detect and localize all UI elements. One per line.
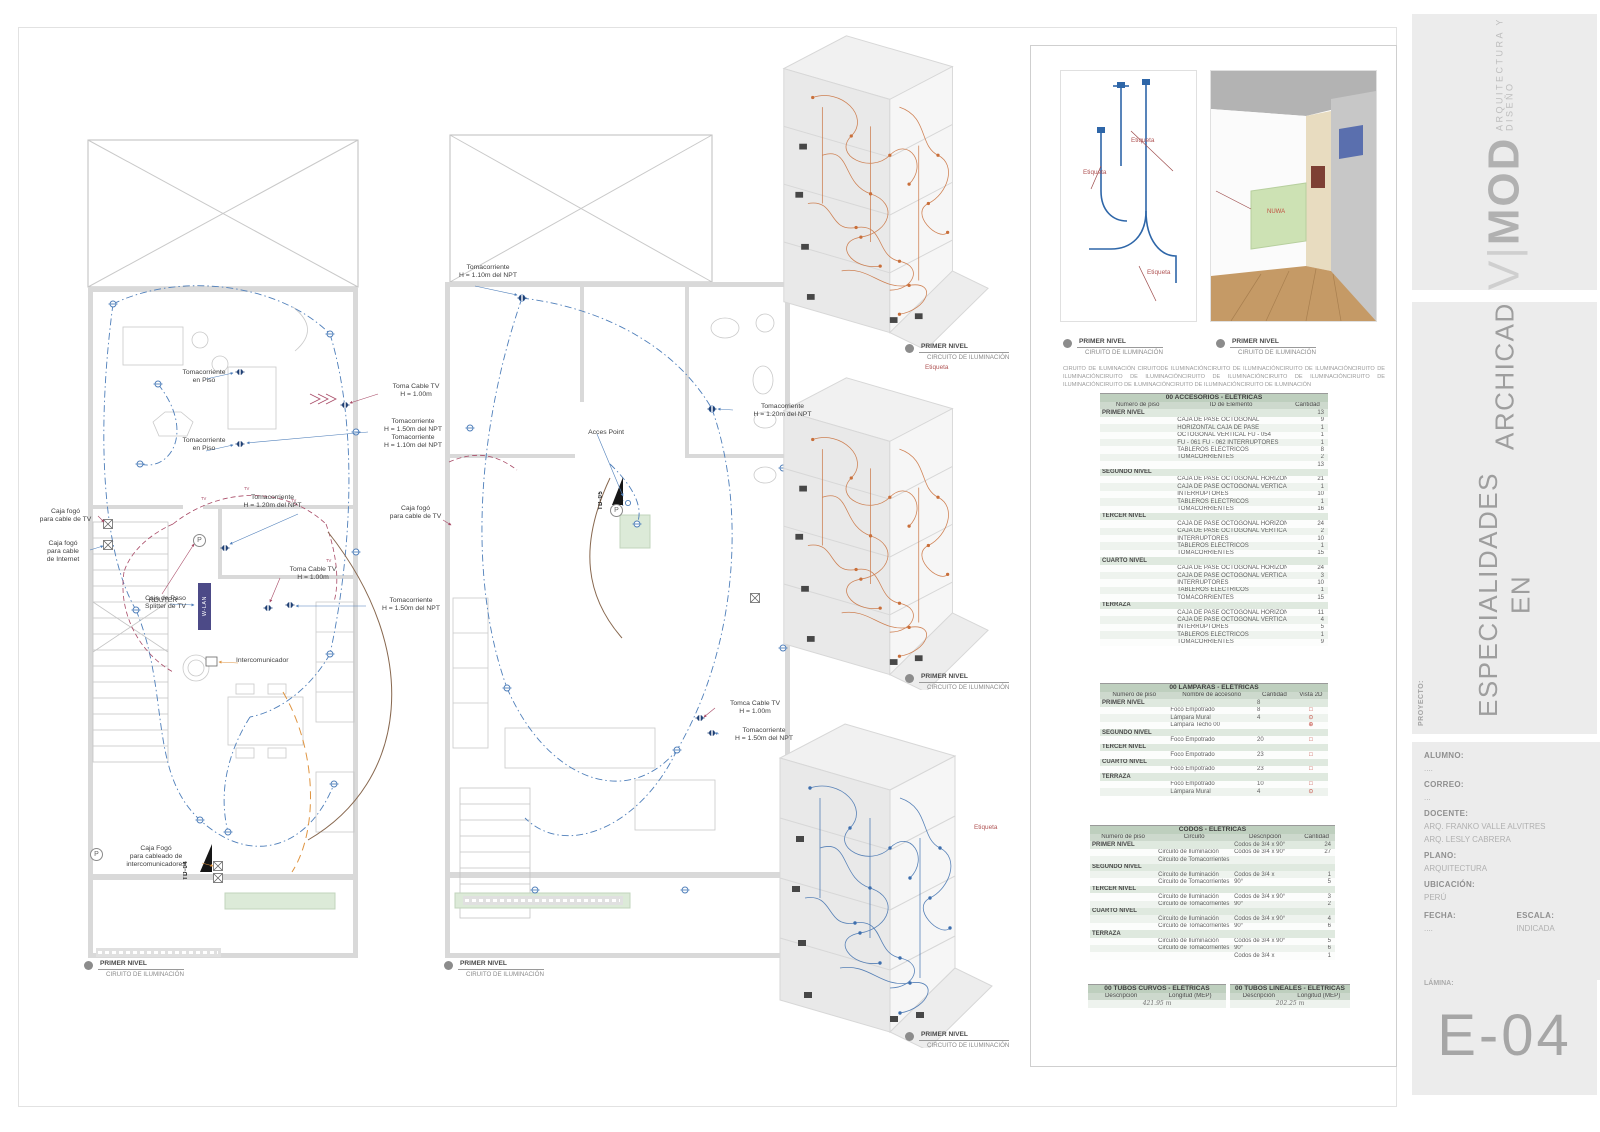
table-lamparas: 00 LÁMPARAS - ELÉTRICASNúmero de pisoNom… bbox=[1100, 683, 1328, 796]
table-cell: Foco Empotrado bbox=[1168, 766, 1255, 773]
table-cell: 15 bbox=[1287, 594, 1328, 601]
table-row: Circuito de IluminaciónCodos de 3/4 x 90… bbox=[1090, 915, 1335, 922]
table-cell bbox=[1100, 550, 1175, 557]
table-cell: 10 bbox=[1287, 579, 1328, 586]
table-row: CUARTO NIVEL bbox=[1090, 908, 1335, 915]
table-cell: 24 bbox=[1287, 565, 1328, 572]
table-cell bbox=[1156, 886, 1232, 893]
data-table: CODOS - ELÉTRICASNúmero de pisoCircuitoD… bbox=[1090, 825, 1335, 960]
table-tubos-curvos: 00 TUBOS CURVOS - ELÉTRICASDescripciónLo… bbox=[1088, 984, 1226, 1008]
table-cell bbox=[1287, 513, 1328, 520]
table-cell: CAJA DE PASE OCTOGONAL VERTICAL bbox=[1175, 616, 1287, 623]
table-cell: 11 bbox=[1287, 609, 1328, 616]
table-cell bbox=[1294, 759, 1328, 766]
fecha-value: .... bbox=[1424, 924, 1517, 933]
p-marker: P bbox=[610, 504, 623, 517]
td04-label: TD-04 bbox=[183, 848, 189, 880]
mural-lamp-icon: ⊙ bbox=[1308, 789, 1313, 795]
foco-lamp-icon: □ bbox=[1309, 752, 1313, 758]
table-cell: 1 bbox=[1287, 439, 1328, 446]
table-cell bbox=[1175, 469, 1287, 476]
drawing-sheet: { "titleblock": { "brand_v": "V|", "bran… bbox=[0, 0, 1600, 1132]
table-cell: 21 bbox=[1287, 476, 1328, 483]
table-cell: Circuito de Tomacorrientes bbox=[1156, 878, 1232, 885]
annotation: Tomacorriente en Piso bbox=[168, 369, 240, 385]
etiqueta-label: Etiqueta bbox=[1147, 269, 1170, 277]
table-cell bbox=[1294, 744, 1328, 751]
table-row: CAJA DE PASE OCTOGONAL VERTICAL4 bbox=[1100, 616, 1328, 623]
docente-value-1: ARQ. FRANKO VALLE ALVITRES bbox=[1424, 822, 1600, 831]
wlan-box: W-LAN bbox=[198, 583, 211, 630]
table-cell: ⊕ bbox=[1294, 722, 1328, 729]
foco-lamp-icon: □ bbox=[1309, 707, 1313, 713]
table-cell bbox=[1100, 714, 1168, 721]
table-cell bbox=[1175, 409, 1287, 416]
table-cell: 13 bbox=[1287, 409, 1328, 416]
table-cell bbox=[1100, 491, 1175, 498]
table-tubos-lineales: 00 TUBOS LINEALES - ELÉTRICASDescripción… bbox=[1230, 984, 1350, 1008]
table-row: Foco Empotrado23□ bbox=[1100, 766, 1328, 773]
table-cell: 1 bbox=[1287, 587, 1328, 594]
table-cell bbox=[1100, 609, 1175, 616]
table-cell: INTERRUPTORES bbox=[1175, 624, 1287, 631]
annotation: Tomacorriente H = 1.20m del NPT bbox=[735, 403, 830, 419]
table-cell: Circuito de Tomacorrientes bbox=[1156, 856, 1232, 863]
td05-label: TD-05 bbox=[598, 478, 604, 510]
table-cell bbox=[1100, 483, 1175, 490]
table-cell bbox=[1175, 461, 1287, 468]
column-header: Circuito bbox=[1156, 834, 1232, 842]
table-row: PRIMER NIVEL8 bbox=[1100, 699, 1328, 706]
table-cell: CAJA DE PASE OCTOGONAL HORIZONTAL bbox=[1175, 520, 1287, 527]
table-cell bbox=[1100, 722, 1168, 729]
table-row: TABLEROS ELÉCTRICOS1 bbox=[1100, 587, 1328, 594]
table-row: TERRAZA bbox=[1090, 930, 1335, 937]
table-row: TABLEROS ELÉCTRICOS1 bbox=[1100, 542, 1328, 549]
table-cell bbox=[1255, 722, 1294, 729]
annotation: Tomacorriente en Piso bbox=[168, 437, 240, 453]
column-header: Cantidad bbox=[1298, 834, 1335, 842]
table-cell: 5 bbox=[1298, 938, 1335, 945]
table-cell bbox=[1100, 506, 1175, 513]
detail-legend-2: PRIMER NIVEL CIRUITO DE ILUMINACIÓN bbox=[1216, 338, 1316, 356]
table-row: Circuito de IluminaciónCodos de 3/4 x 90… bbox=[1090, 893, 1335, 900]
table-cell bbox=[1100, 542, 1175, 549]
table-cell bbox=[1175, 602, 1287, 609]
table-cell: 10 bbox=[1287, 535, 1328, 542]
blue-panel bbox=[1339, 125, 1363, 159]
table-row: CAJA DE PASE OCTOGONAL HORIZONTAL24 bbox=[1100, 520, 1328, 527]
table-cell bbox=[1100, 639, 1175, 646]
table-row: CAJA DE PASE OCTOGONAL HORIZONTAL24 bbox=[1100, 565, 1328, 572]
brand-tagline: ARQUITECTURA Y DISEÑO bbox=[1495, 14, 1515, 131]
table-cell: CAJA DE PASE OCTOGONAL VERTICAL bbox=[1175, 483, 1287, 490]
table-cell bbox=[1294, 699, 1328, 706]
table-cell: 90° bbox=[1232, 878, 1298, 885]
table-cell bbox=[1298, 930, 1335, 937]
table-cell: 3 bbox=[1287, 572, 1328, 579]
table-cell: 1 bbox=[1298, 952, 1335, 959]
table-row: Codos de 3/4 x1 bbox=[1090, 952, 1335, 959]
table-cell bbox=[1255, 759, 1294, 766]
table-row: TERCER NIVEL bbox=[1100, 744, 1328, 751]
table-cell bbox=[1156, 908, 1232, 915]
table-cell: 20 bbox=[1255, 736, 1294, 743]
table-cell bbox=[1232, 864, 1298, 871]
table-cell bbox=[1298, 856, 1335, 863]
mural-lamp-icon: ⊙ bbox=[1308, 715, 1313, 721]
level-dot-icon bbox=[84, 961, 93, 970]
table-cell: CUARTO NIVEL bbox=[1090, 908, 1156, 915]
sheet-number: E-04 bbox=[1412, 1002, 1597, 1069]
table-cell: 1 bbox=[1287, 542, 1328, 549]
table-cell: TERRAZA bbox=[1090, 930, 1156, 937]
table-cell bbox=[1100, 424, 1175, 431]
foco-lamp-icon: □ bbox=[1309, 737, 1313, 743]
annotation: Toma Cable TV H = 1.00m bbox=[277, 566, 349, 582]
plan-left-caption: PRIMER NIVEL CIRUITO DE ILUMINACIÓN bbox=[84, 960, 184, 978]
table-cell: Codos de 3/4 x bbox=[1232, 871, 1298, 878]
table-row: Lámpara Mural4⊙ bbox=[1100, 714, 1328, 721]
table-row: TOMACORRIENTES2 bbox=[1100, 454, 1328, 461]
table-cell: 90° bbox=[1232, 901, 1298, 908]
table-cell: 9 bbox=[1287, 639, 1328, 646]
table-cell: CUARTO NIVEL bbox=[1100, 557, 1175, 564]
table-cell: 4 bbox=[1298, 915, 1335, 922]
table-cell: Circuito de Iluminación bbox=[1156, 871, 1232, 878]
table-row: TOMACORRIENTES15 bbox=[1100, 550, 1328, 557]
table-row: TERRAZA bbox=[1100, 773, 1328, 780]
data-table: 00 TUBOS CURVOS - ELÉTRICASDescripciónLo… bbox=[1088, 984, 1226, 1008]
table-cell: PRIMER NIVEL bbox=[1090, 841, 1156, 848]
table-row: TABLEROS ELÉCTRICOS1 bbox=[1100, 498, 1328, 505]
table-cell: 8 bbox=[1255, 699, 1294, 706]
annotation: Tomacorriente H = 1.20m del NPT bbox=[225, 494, 320, 510]
table-cell: 10 bbox=[1255, 781, 1294, 788]
table-cell: □ bbox=[1294, 736, 1328, 743]
ubicacion-label: UBICACIÓN: bbox=[1424, 880, 1600, 889]
table-cell bbox=[1090, 915, 1156, 922]
table-cell: 1 bbox=[1287, 432, 1328, 439]
table-title: CODOS - ELÉTRICAS bbox=[1090, 826, 1335, 834]
table-title: 00 LÁMPARAS - ELÉTRICAS bbox=[1100, 684, 1328, 692]
table-cell bbox=[1156, 841, 1232, 848]
table-codos: CODOS - ELÉTRICASNúmero de pisoCircuitoD… bbox=[1090, 825, 1335, 960]
table-row: Lámpara Mural4⊙ bbox=[1100, 788, 1328, 795]
table-cell: Codos de 3/4 x 90° bbox=[1232, 849, 1298, 856]
level-dot-icon bbox=[905, 674, 914, 683]
techo-lamp-icon: ⊕ bbox=[1308, 722, 1313, 728]
table-cell: □ bbox=[1294, 751, 1328, 758]
foco-lamp-icon: □ bbox=[1309, 781, 1313, 787]
table-cell: TABLEROS ELÉCTRICOS bbox=[1175, 498, 1287, 505]
plano-label: PLANO: bbox=[1424, 851, 1600, 860]
table-cell bbox=[1090, 878, 1156, 885]
table-cell bbox=[1175, 513, 1287, 520]
detail-image-wire: Etiqueta Etiqueta Etiqueta bbox=[1060, 70, 1197, 322]
correo-label: CORREO: bbox=[1424, 780, 1600, 789]
table-cell: TABLEROS ELÉCTRICOS bbox=[1175, 587, 1287, 594]
table-cell bbox=[1100, 624, 1175, 631]
table-row: CAJA DE PASE OCTOGONAL HORIZONTAL11 bbox=[1100, 609, 1328, 616]
table-row: Lámpara Techo 00⊕ bbox=[1100, 722, 1328, 729]
table-row: CAJA DE PASE OCTOGONAL VERTICAL1 bbox=[1100, 483, 1328, 490]
sheet-title-line1: ESPECIALIDADES EN bbox=[1472, 456, 1537, 734]
table-cell bbox=[1294, 729, 1328, 736]
level-dot-icon bbox=[905, 344, 914, 353]
table-row: CUARTO NIVEL bbox=[1100, 759, 1328, 766]
table-row: TOMACORRIENTES9 bbox=[1100, 639, 1328, 646]
docente-label: DOCENTE: bbox=[1424, 809, 1600, 818]
fecha-label: FECHA: bbox=[1424, 911, 1517, 920]
table-row: HORIZONTAL CAJA DE PASE1 bbox=[1100, 424, 1328, 431]
table-cell bbox=[1100, 454, 1175, 461]
table-cell bbox=[1100, 565, 1175, 572]
table-row: SEGUNDO NIVEL bbox=[1100, 729, 1328, 736]
table-cell bbox=[1100, 781, 1168, 788]
table-cell: 8 bbox=[1255, 707, 1294, 714]
table-cell bbox=[1232, 908, 1298, 915]
table-row: PRIMER NIVELCodos de 3/4 x 90°24 bbox=[1090, 841, 1335, 848]
etiqueta-label: Etiqueta bbox=[925, 364, 948, 372]
annotation: Tomacorriente H = 1.50m del NPT bbox=[720, 727, 808, 743]
table-cell: TERCER NIVEL bbox=[1100, 744, 1168, 751]
table-row: Foco Empotrado20□ bbox=[1100, 736, 1328, 743]
table-cell bbox=[1168, 759, 1255, 766]
table-cell bbox=[1175, 557, 1287, 564]
column-header: Descripción bbox=[1088, 993, 1154, 1001]
column-header: Longitud (MEP) bbox=[1288, 993, 1350, 1001]
level-dot-icon bbox=[444, 961, 453, 970]
table-cell: 4 bbox=[1255, 714, 1294, 721]
painting bbox=[1311, 166, 1325, 188]
table-accesorios: 00 ACCESORIOS - ELÉTRICASNúmero de pisoI… bbox=[1100, 393, 1328, 646]
table-cell bbox=[1100, 498, 1175, 505]
table-cell: ⊙ bbox=[1294, 788, 1328, 795]
table-cell bbox=[1090, 901, 1156, 908]
table-cell bbox=[1232, 930, 1298, 937]
table-cell: 2 bbox=[1287, 528, 1328, 535]
column-header: ID de Elemento bbox=[1175, 402, 1287, 410]
table-cell bbox=[1090, 893, 1156, 900]
column-header: Descripción bbox=[1230, 993, 1288, 1001]
table-cell bbox=[1100, 461, 1175, 468]
annotation: Tomacorriente H = 1.10m del NPT bbox=[448, 264, 528, 280]
table-cell bbox=[1287, 557, 1328, 564]
table-cell: INTERRUPTORES bbox=[1175, 579, 1287, 586]
annotation: Intercomunicador bbox=[236, 657, 318, 665]
data-table: 00 ACCESORIOS - ELÉTRICASNúmero de pisoI… bbox=[1100, 393, 1328, 646]
table-cell bbox=[1298, 864, 1335, 871]
data-table: 00 TUBOS LINEALES - ELÉTRICASDescripción… bbox=[1230, 984, 1350, 1008]
titleblock-lamina-box: LÁMINA: E-04 bbox=[1412, 968, 1597, 1095]
table-cell: Codos de 3/4 x 90° bbox=[1232, 893, 1298, 900]
table-cell: Circuito de Iluminación bbox=[1156, 849, 1232, 856]
table-cell: 23 bbox=[1255, 766, 1294, 773]
table-cell bbox=[1100, 736, 1168, 743]
table-cell: INTERRUPTORES bbox=[1175, 535, 1287, 542]
table-cell: SEGUNDO NIVEL bbox=[1090, 864, 1156, 871]
table-cell: 4 bbox=[1255, 788, 1294, 795]
table-cell: CAJA DE PASE OCTOGONAL VERTICAL bbox=[1175, 572, 1287, 579]
detail-image-render: NUWA bbox=[1210, 70, 1377, 322]
table-row: Circuito de IluminaciónCodos de 3/4 x1 bbox=[1090, 871, 1335, 878]
table-cell: ⊙ bbox=[1294, 714, 1328, 721]
table-row: INTERRUPTORES10 bbox=[1100, 535, 1328, 542]
table-row: CAJA DE PASE OCTOGONAL VERTICAL3 bbox=[1100, 572, 1328, 579]
correo-value: ... bbox=[1424, 793, 1600, 802]
table-cell: TOMACORRIENTES bbox=[1175, 594, 1287, 601]
table-cell: Circuito de Tomacorrientes bbox=[1156, 923, 1232, 930]
table-cell: Foco Empotrado bbox=[1168, 781, 1255, 788]
table-cell bbox=[1100, 616, 1175, 623]
table-cell bbox=[1100, 631, 1175, 638]
sheet-title-line2: ARCHICAD bbox=[1488, 302, 1521, 450]
table-row: FU - 061 FU - 062 INTERRUPTORES1 bbox=[1100, 439, 1328, 446]
table-row: Foco Empotrado8□ bbox=[1100, 707, 1328, 714]
table-cell: Circuito de Iluminación bbox=[1156, 893, 1232, 900]
level-dot-icon bbox=[905, 1032, 914, 1041]
p-marker: P bbox=[193, 534, 206, 547]
table-row: CUARTO NIVEL bbox=[1100, 557, 1328, 564]
green-cabinet bbox=[1251, 183, 1306, 249]
table-cell: TABLEROS ELÉCTRICOS bbox=[1175, 446, 1287, 453]
table-cell: FU - 061 FU - 062 INTERRUPTORES bbox=[1175, 439, 1287, 446]
table-row: Circuito de Tomacorrientes90°2 bbox=[1090, 901, 1335, 908]
table-cell: TABLEROS ELÉCTRICOS bbox=[1175, 631, 1287, 638]
table-row: SEGUNDO NIVEL bbox=[1090, 864, 1335, 871]
table-row: 421.95 m bbox=[1088, 1000, 1226, 1007]
table-cell bbox=[1090, 856, 1156, 863]
table-cell: Lámpara Mural bbox=[1168, 714, 1255, 721]
table-cell: 24 bbox=[1298, 841, 1335, 848]
table-cell: 24 bbox=[1287, 520, 1328, 527]
proyecto-label: PROYECTO: bbox=[1418, 680, 1425, 726]
table-cell: TOMACORRIENTES bbox=[1175, 454, 1287, 461]
table-cell: TABLEROS ELÉCTRICOS bbox=[1175, 542, 1287, 549]
table-cell bbox=[1100, 579, 1175, 586]
table-cell bbox=[1090, 871, 1156, 878]
annotation: Tomacorriente H = 1.50m del NPT bbox=[366, 597, 456, 613]
column-header: Número de piso bbox=[1100, 692, 1168, 700]
table-row: CAJA DE PASE OCTOGONAL HORIZONTAL21 bbox=[1100, 476, 1328, 483]
table-title: 00 TUBOS LINEALES - ELÉTRICAS bbox=[1230, 985, 1350, 993]
table-cell bbox=[1100, 417, 1175, 424]
column-header: Longitud (MEP) bbox=[1154, 993, 1226, 1001]
view2-caption: PRIMER NIVEL CIRCUITO DE ILUMINACIÓN bbox=[905, 673, 1009, 691]
table-cell bbox=[1232, 886, 1298, 893]
table-cell bbox=[1090, 952, 1156, 959]
table-cell bbox=[1232, 856, 1298, 863]
table-cell bbox=[1100, 788, 1168, 795]
titleblock-logo-box: V|MOD ARQUITECTURA Y DISEÑO bbox=[1412, 14, 1597, 290]
table-row: INTERRUPTORES10 bbox=[1100, 491, 1328, 498]
p-marker: P bbox=[90, 848, 103, 861]
annotation: Toma Cable TV H = 1.00m bbox=[380, 383, 452, 399]
table-cell bbox=[1100, 476, 1175, 483]
table-cell bbox=[1100, 446, 1175, 453]
table-cell bbox=[1100, 594, 1175, 601]
table-row: TABLEROS ELÉCTRICOS8 bbox=[1100, 446, 1328, 453]
table-cell: 90° bbox=[1232, 923, 1298, 930]
render-text: NUWA bbox=[1267, 209, 1285, 215]
table-cell: Codos de 3/4 x 90° bbox=[1232, 938, 1298, 945]
column-header: Nombre de accesorio bbox=[1168, 692, 1255, 700]
table-cell: CAJA DE PASE OCTOGONAL HORIZONTAL bbox=[1175, 609, 1287, 616]
detail-legend-1: PRIMER NIVEL CIRUITO DE ILUMINACIÓN bbox=[1063, 338, 1163, 356]
table-cell bbox=[1100, 707, 1168, 714]
view1-caption: PRIMER NIVEL CIRCUITO DE ILUMINACIÓN bbox=[905, 343, 1009, 361]
table-cell bbox=[1156, 864, 1232, 871]
table-cell bbox=[1255, 744, 1294, 751]
plano-value: ARQUITECTURA bbox=[1424, 864, 1600, 873]
table-cell: TERRAZA bbox=[1100, 773, 1168, 780]
table-cell: PRIMER NIVEL bbox=[1100, 409, 1175, 416]
table-cell: 16 bbox=[1287, 506, 1328, 513]
table-cell: PRIMER NIVEL bbox=[1100, 699, 1168, 706]
table-cell: Codos de 3/4 x 90° bbox=[1232, 841, 1298, 848]
table-cell: 1 bbox=[1287, 483, 1328, 490]
table-cell: CAJA DE PASE OCTOGONAL bbox=[1175, 417, 1287, 424]
table-cell bbox=[1168, 744, 1255, 751]
table-cell bbox=[1298, 908, 1335, 915]
table-title: 00 TUBOS CURVOS - ELÉTRICAS bbox=[1088, 985, 1226, 993]
table-row: TERCER NIVEL bbox=[1100, 513, 1328, 520]
table-row: 202.25 m bbox=[1230, 1000, 1350, 1007]
table-cell: Foco Empotrado bbox=[1168, 707, 1255, 714]
table-cell: INTERRUPTORES bbox=[1175, 491, 1287, 498]
table-cell bbox=[1100, 766, 1168, 773]
table-cell: TERCER NIVEL bbox=[1090, 886, 1156, 893]
table-cell: TERCER NIVEL bbox=[1100, 513, 1175, 520]
etiqueta-label: Etiqueta bbox=[1083, 169, 1106, 177]
table-cell: SEGUNDO NIVEL bbox=[1100, 469, 1175, 476]
table-cell: 15 bbox=[1287, 550, 1328, 557]
etiqueta-label: Etiqueta bbox=[974, 824, 997, 832]
table-cell bbox=[1255, 729, 1294, 736]
table-cell: 27 bbox=[1298, 849, 1335, 856]
table-cell bbox=[1090, 945, 1156, 952]
table-cell bbox=[1298, 886, 1335, 893]
table-cell: CAJA DE PASE OCTOGONAL VERTICAL bbox=[1175, 528, 1287, 535]
table-row: Circuito de IluminaciónCodos de 3/4 x 90… bbox=[1090, 849, 1335, 856]
table-row: 13 bbox=[1100, 461, 1328, 468]
table-cell: 1 bbox=[1287, 498, 1328, 505]
annotation: Tomacorriente H = 1.50m del NPT Tomacorr… bbox=[368, 418, 458, 451]
table-cell: 90° bbox=[1232, 945, 1298, 952]
table-row: Circuito de IluminaciónCodos de 3/4 x 90… bbox=[1090, 938, 1335, 945]
table-row: Circuito de Tomacorrientes90°5 bbox=[1090, 878, 1335, 885]
table-cell: Codos de 3/4 x 90° bbox=[1232, 915, 1298, 922]
table-row: INTERRUPTORES10 bbox=[1100, 579, 1328, 586]
annotation: Acces Point bbox=[566, 429, 624, 437]
table-row: SEGUNDO NIVEL bbox=[1100, 469, 1328, 476]
alumno-value: .... bbox=[1424, 764, 1600, 773]
table-cell bbox=[1168, 699, 1255, 706]
table-cell bbox=[1090, 938, 1156, 945]
table-cell: 10 bbox=[1287, 491, 1328, 498]
brand-logo: V|MOD bbox=[1483, 137, 1527, 290]
table-cell: Lámpara Mural bbox=[1168, 788, 1255, 795]
table-cell bbox=[1090, 923, 1156, 930]
table-cell bbox=[1100, 520, 1175, 527]
legend-paragraph: CIRUITO DE ILUMINACIÓN CIRUITODE ILUMINA… bbox=[1063, 366, 1385, 389]
column-header: Vista 2D bbox=[1294, 692, 1328, 700]
table-row: TOMACORRIENTES16 bbox=[1100, 506, 1328, 513]
escala-value: INDICADA bbox=[1517, 924, 1600, 933]
table-cell: Codos de 3/4 x bbox=[1232, 952, 1298, 959]
table-cell: Circuito de Tomacorrientes bbox=[1156, 901, 1232, 908]
